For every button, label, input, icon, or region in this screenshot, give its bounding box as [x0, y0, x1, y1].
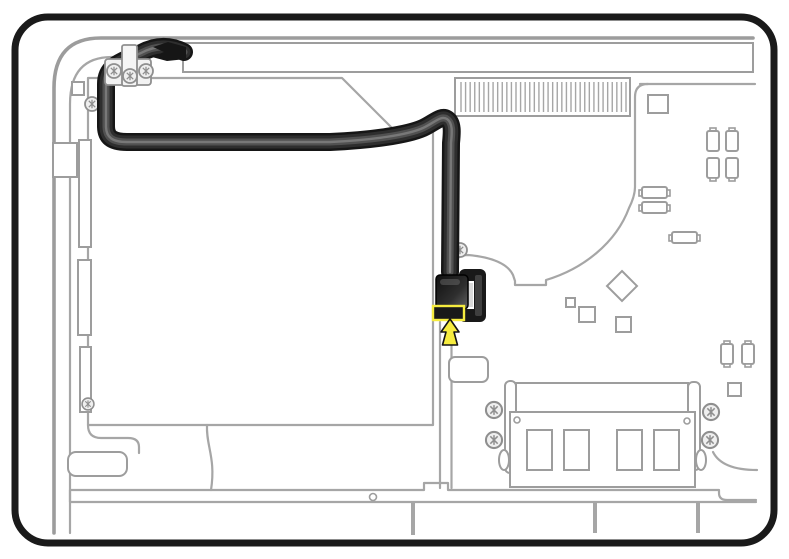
memory-chip	[654, 430, 679, 470]
screw	[85, 97, 99, 111]
memory-chip	[564, 430, 589, 470]
chip-outline	[616, 317, 631, 332]
screw	[486, 432, 502, 448]
chassis-foot	[68, 452, 127, 476]
service-diagram-page	[0, 0, 789, 559]
screw	[82, 398, 94, 410]
side-bracket	[53, 143, 77, 177]
memory-shield-bar	[516, 383, 688, 412]
chip-outline	[728, 383, 741, 396]
wall-tab	[78, 260, 91, 335]
screw	[107, 64, 121, 78]
memory-chip	[617, 430, 642, 470]
screw	[123, 69, 137, 83]
wall-notch	[72, 82, 84, 95]
screw	[702, 432, 718, 448]
module-hole	[684, 418, 690, 424]
memory-chip	[527, 430, 552, 470]
screw	[703, 404, 719, 420]
chip-outline	[566, 298, 575, 307]
slot-bracket	[449, 357, 488, 382]
screw	[139, 64, 153, 78]
display-panel-edge	[183, 43, 753, 72]
highlight-box	[433, 306, 464, 320]
retainer-hook	[696, 450, 706, 470]
chip-outline	[648, 95, 668, 113]
rail-tick	[696, 503, 700, 533]
service-diagram	[0, 0, 789, 559]
screw	[486, 402, 502, 418]
chip-outline	[579, 307, 595, 322]
screw-hole	[370, 494, 377, 501]
heatsink-vent	[455, 78, 630, 116]
rail-tick	[593, 503, 597, 533]
module-hole	[514, 417, 520, 423]
wall-tab	[79, 140, 91, 247]
rail-tick	[411, 502, 415, 535]
connector-highlight	[440, 279, 460, 285]
bracket-gloss	[475, 275, 482, 316]
retainer-hook	[499, 450, 509, 470]
